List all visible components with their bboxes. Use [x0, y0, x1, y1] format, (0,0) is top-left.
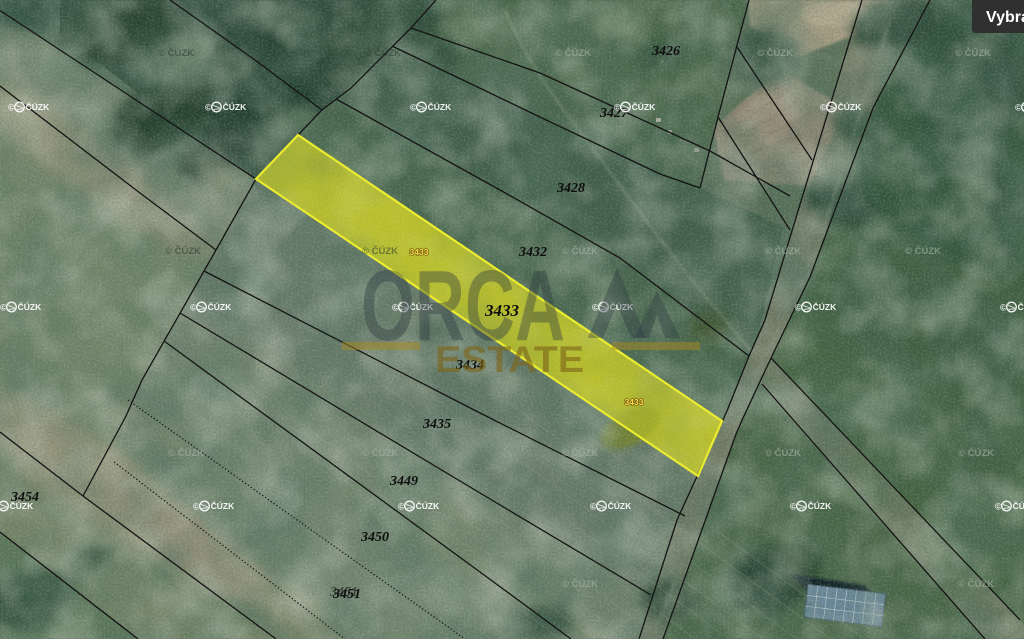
svg-text:©: ©: [590, 502, 597, 512]
svg-text:ČÚZK: ČÚZK: [10, 500, 34, 511]
svg-text:© ČÚZK: © ČÚZK: [765, 447, 801, 459]
svg-text:©: ©: [398, 502, 405, 512]
svg-text:ČÚZK: ČÚZK: [808, 500, 832, 511]
svg-text:© ČÚZK: © ČÚZK: [562, 245, 598, 257]
svg-text:© ČÚZK: © ČÚZK: [362, 447, 398, 459]
svg-text:© ČÚZK: © ČÚZK: [765, 245, 801, 257]
svg-text:©: ©: [820, 103, 827, 113]
svg-text:3433: 3433: [625, 397, 644, 407]
svg-text:© ČÚZK: © ČÚZK: [555, 47, 591, 59]
svg-text:ČÚZK: ČÚZK: [26, 101, 50, 112]
svg-text:3451: 3451: [329, 585, 358, 600]
svg-text:©: ©: [193, 502, 200, 512]
svg-text:©: ©: [8, 103, 15, 113]
svg-text:ESTATE: ESTATE: [435, 339, 584, 380]
svg-text:ČÚZK: ČÚZK: [838, 101, 862, 112]
svg-text:©: ©: [790, 502, 797, 512]
svg-text:© ČÚZK: © ČÚZK: [365, 47, 401, 59]
svg-text:3449: 3449: [389, 474, 418, 489]
svg-text:©: ©: [1015, 103, 1022, 113]
svg-text:© ČÚZK: © ČÚZK: [905, 245, 941, 257]
svg-text:© ČÚZK: © ČÚZK: [168, 447, 204, 459]
svg-text:ČÚZK: ČÚZK: [632, 101, 656, 112]
svg-text:ČÚZK: ČÚZK: [1018, 301, 1024, 312]
svg-text:3428: 3428: [556, 181, 585, 196]
svg-text:© ČÚZK: © ČÚZK: [165, 245, 201, 257]
svg-text:©: ©: [205, 103, 212, 113]
svg-text:© ČÚZK: © ČÚZK: [562, 447, 598, 459]
svg-text:ČÚZK: ČÚZK: [223, 101, 247, 112]
svg-text:ČÚZK: ČÚZK: [211, 500, 235, 511]
svg-text:© ČÚZK: © ČÚZK: [958, 578, 994, 590]
svg-text:©: ©: [410, 103, 417, 113]
svg-text:© ČÚZK: © ČÚZK: [757, 47, 793, 59]
svg-text:©: ©: [995, 502, 1002, 512]
svg-text:ČÚZK: ČÚZK: [1013, 500, 1024, 511]
svg-text:ČÚZK: ČÚZK: [208, 301, 232, 312]
svg-text:ČÚZK: ČÚZK: [813, 301, 837, 312]
svg-text:ČÚZK: ČÚZK: [18, 301, 42, 312]
svg-text:3450: 3450: [360, 530, 389, 545]
svg-text:© ČÚZK: © ČÚZK: [158, 47, 194, 59]
svg-text:ČÚZK: ČÚZK: [428, 101, 452, 112]
svg-text:©: ©: [592, 303, 599, 313]
svg-text:ČÚZK: ČÚZK: [416, 500, 440, 511]
svg-text:© ČÚZK: © ČÚZK: [562, 578, 598, 590]
svg-text:©: ©: [795, 303, 802, 313]
svg-text:3426: 3426: [651, 44, 680, 59]
svg-text:Vybran: Vybran: [986, 9, 1024, 26]
svg-text:© ČÚZK: © ČÚZK: [958, 447, 994, 459]
svg-text:©: ©: [0, 303, 7, 313]
svg-text:©: ©: [1000, 303, 1007, 313]
svg-text:ČÚZK: ČÚZK: [608, 500, 632, 511]
svg-text:©: ©: [190, 303, 197, 313]
svg-text:© ČÚZK: © ČÚZK: [955, 47, 991, 59]
svg-text:3435: 3435: [422, 417, 451, 432]
svg-text:©: ©: [614, 103, 621, 113]
